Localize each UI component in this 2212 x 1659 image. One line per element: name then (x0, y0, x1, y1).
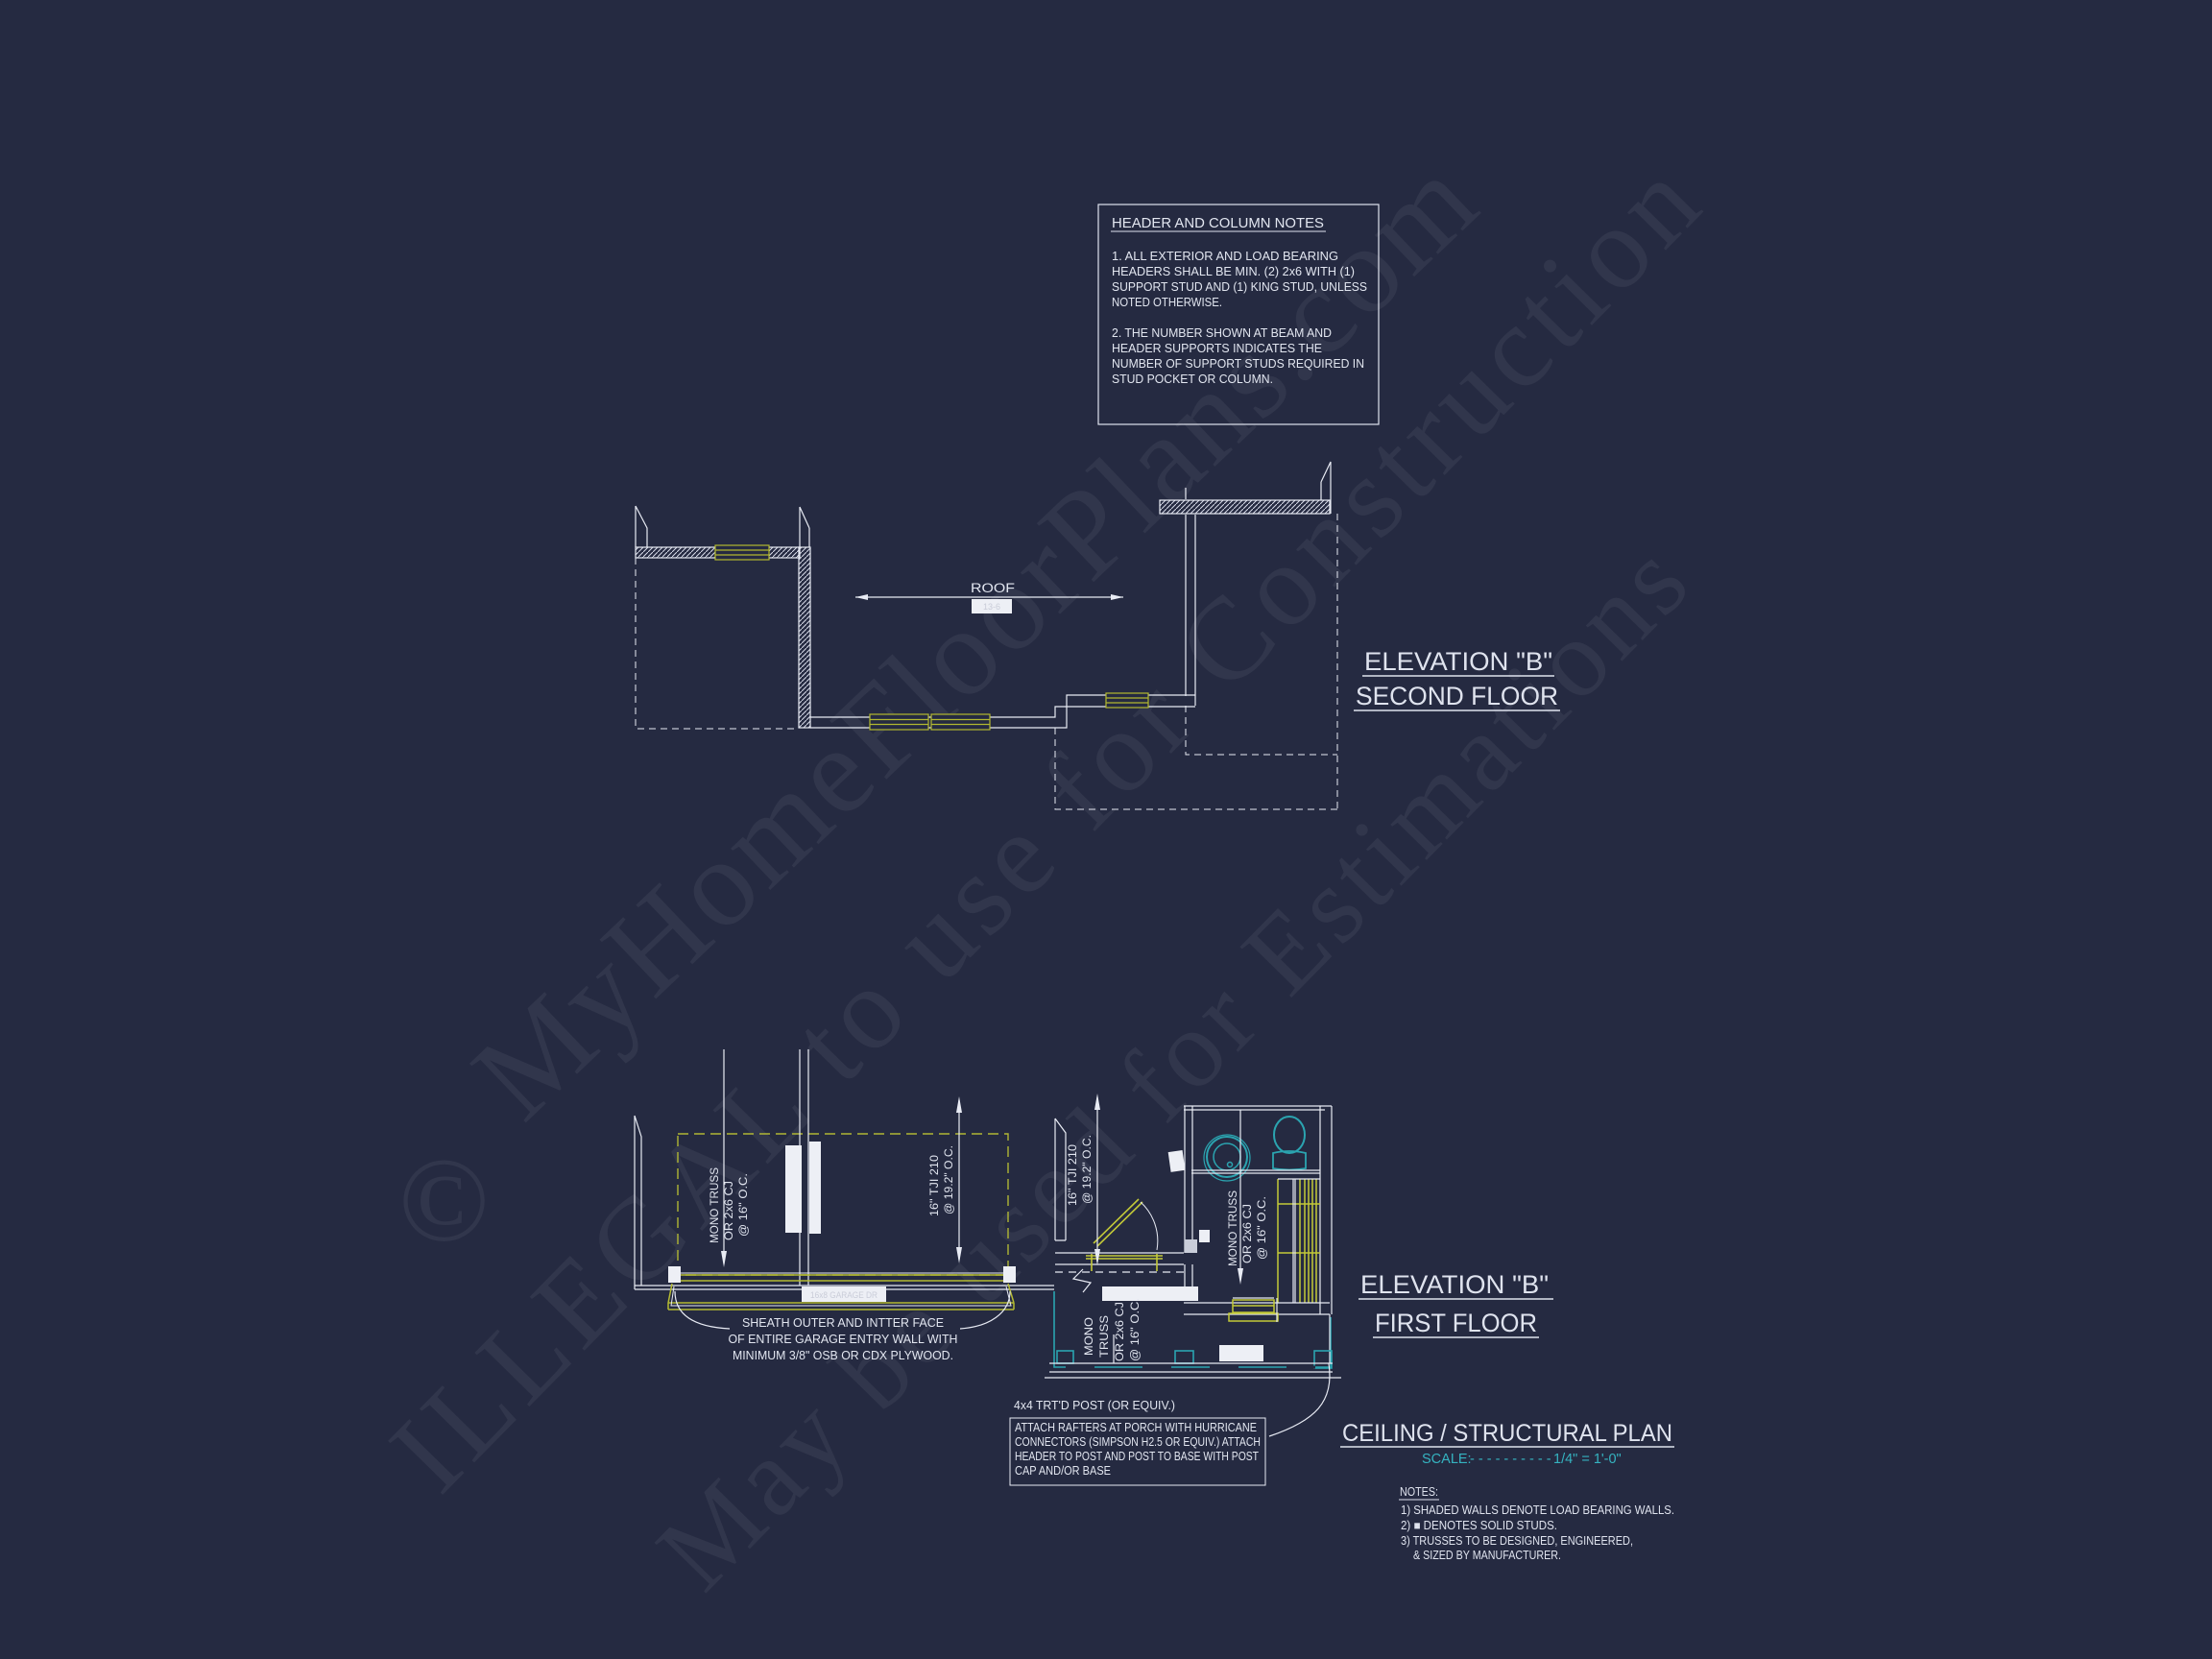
svg-text:2) ■ DENOTES SOLID STUDS.: 2) ■ DENOTES SOLID STUDS. (1401, 1519, 1557, 1532)
svg-text:MONO TRUSS: MONO TRUSS (708, 1167, 721, 1243)
svg-text:- - - - - - - - - -: - - - - - - - - - - (1470, 1452, 1551, 1467)
svg-text:MONO TRUSS: MONO TRUSS (1226, 1190, 1239, 1266)
svg-text:SECOND FLOOR: SECOND FLOOR (1356, 682, 1558, 710)
svg-text:OR 2x6 CJ: OR 2x6 CJ (1115, 1302, 1126, 1361)
svg-text:HEADERS SHALL BE MIN. (2) 2x6: HEADERS SHALL BE MIN. (2) 2x6 WITH (1) (1112, 265, 1355, 278)
svg-text:2. THE NUMBER SHOWN AT BEAM AN: 2. THE NUMBER SHOWN AT BEAM AND (1112, 326, 1332, 340)
svg-text:OR 2x6 CJ: OR 2x6 CJ (1240, 1204, 1254, 1263)
svg-text:@ 19.2" O.C.: @ 19.2" O.C. (1080, 1135, 1094, 1204)
svg-text:OF ENTIRE GARAGE ENTRY WALL WI: OF ENTIRE GARAGE ENTRY WALL WITH (729, 1333, 958, 1346)
svg-text:CAP AND/OR BASE: CAP AND/OR BASE (1015, 1464, 1111, 1478)
svg-text:16x8 GARAGE DR: 16x8 GARAGE DR (810, 1290, 878, 1300)
svg-text:ELEVATION "B": ELEVATION "B" (1360, 1270, 1549, 1299)
svg-text:MONO: MONO (1084, 1317, 1095, 1356)
svg-text:HEADER AND COLUMN NOTES: HEADER AND COLUMN NOTES (1112, 216, 1324, 231)
svg-text:& SIZED BY MANUFACTURER.: & SIZED BY MANUFACTURER. (1413, 1549, 1561, 1562)
svg-text:ELEVATION "B": ELEVATION "B" (1364, 647, 1552, 676)
svg-text:16" TJI 210: 16" TJI 210 (1066, 1144, 1079, 1206)
svg-text:SCALE:: SCALE: (1422, 1452, 1472, 1467)
svg-text:13-6: 13-6 (983, 602, 1000, 612)
svg-text:@ 19.2" O.C.: @ 19.2" O.C. (942, 1145, 955, 1214)
svg-text:@ 16" O.C.: @ 16" O.C. (1255, 1196, 1268, 1260)
svg-text:SHEATH OUTER AND INTTER FACE: SHEATH OUTER AND INTTER FACE (742, 1316, 944, 1330)
svg-text:TRUSS: TRUSS (1099, 1315, 1111, 1358)
svg-text:STUD POCKET OR COLUMN.: STUD POCKET OR COLUMN. (1112, 373, 1273, 386)
svg-text:NUMBER OF SUPPORT STUDS REQUIR: NUMBER OF SUPPORT STUDS REQUIRED IN (1112, 357, 1364, 371)
svg-text:@ 16" O.C.: @ 16" O.C. (1130, 1298, 1142, 1361)
svg-text:MINIMUM 3/8" OSB OR CDX PLYWOO: MINIMUM 3/8" OSB OR CDX PLYWOOD. (733, 1349, 953, 1362)
svg-text:3) TRUSSES TO BE DESIGNED, ENG: 3) TRUSSES TO BE DESIGNED, ENGINEERED, (1401, 1534, 1633, 1548)
svg-text:1/4" = 1'-0": 1/4" = 1'-0" (1553, 1452, 1622, 1467)
svg-text:NOTES:: NOTES: (1400, 1484, 1438, 1499)
svg-text:ROOF: ROOF (971, 581, 1015, 595)
svg-text:ATTACH RAFTERS AT PORCH WITH H: ATTACH RAFTERS AT PORCH WITH HURRICANE (1015, 1421, 1257, 1434)
svg-text:OR 2x6 CJ: OR 2x6 CJ (722, 1181, 735, 1240)
svg-text:1. ALL EXTERIOR AND LOAD BEARI: 1. ALL EXTERIOR AND LOAD BEARING (1112, 250, 1338, 263)
svg-text:NOTED OTHERWISE.: NOTED OTHERWISE. (1112, 296, 1222, 309)
svg-text:FIRST FLOOR: FIRST FLOOR (1375, 1309, 1537, 1337)
svg-text:CEILING / STRUCTURAL PLAN: CEILING / STRUCTURAL PLAN (1342, 1420, 1672, 1447)
svg-text:©: © (398, 1135, 490, 1267)
svg-text:4x4 TRT'D POST (OR EQUIV.): 4x4 TRT'D POST (OR EQUIV.) (1014, 1399, 1175, 1412)
svg-text:1) SHADED WALLS DENOTE LOAD BE: 1) SHADED WALLS DENOTE LOAD BEARING WALL… (1401, 1503, 1674, 1517)
svg-text:@ 16" O.C.: @ 16" O.C. (736, 1173, 750, 1237)
svg-text:HEADER SUPPORTS INDICATES THE: HEADER SUPPORTS INDICATES THE (1112, 342, 1322, 355)
svg-text:SUPPORT STUD AND (1) KING STUD: SUPPORT STUD AND (1) KING STUD, UNLESS (1112, 280, 1367, 294)
svg-text:CONNECTORS (SIMPSON H2.5 OR EQ: CONNECTORS (SIMPSON H2.5 OR EQUIV.) ATTA… (1015, 1435, 1261, 1449)
svg-text:HEADER TO POST AND POST TO BAS: HEADER TO POST AND POST TO BASE WITH POS… (1015, 1450, 1259, 1463)
svg-text:16" TJI 210: 16" TJI 210 (927, 1155, 941, 1216)
